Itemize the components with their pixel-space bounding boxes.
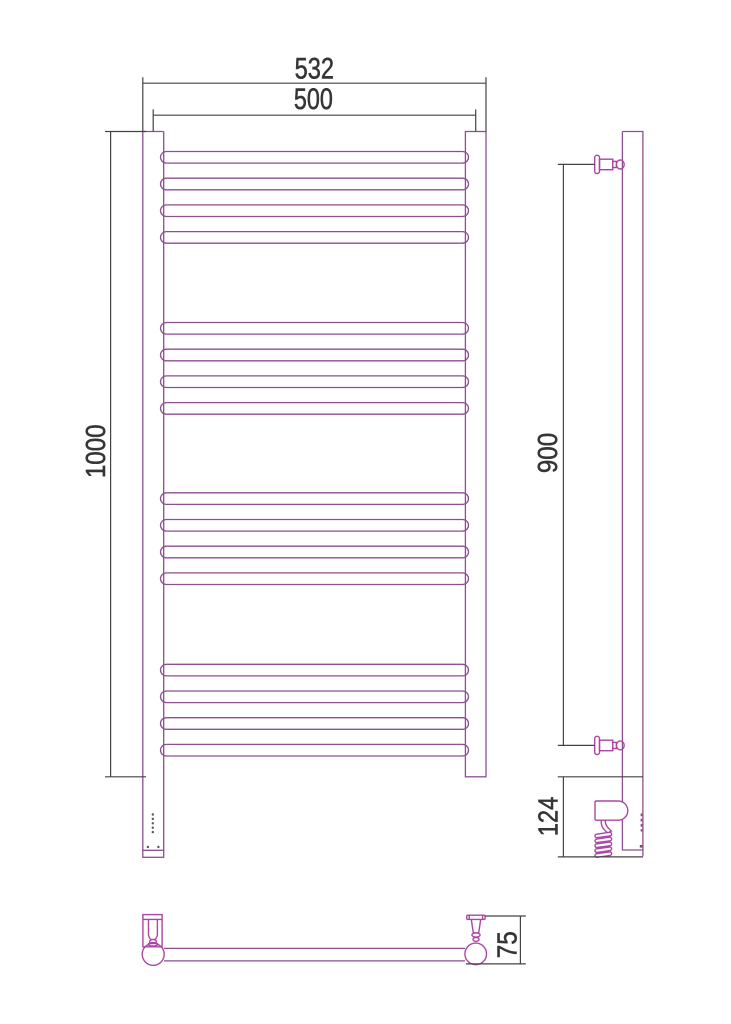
svg-text:124: 124 [533, 797, 564, 837]
svg-text:900: 900 [532, 433, 563, 473]
svg-text:75: 75 [492, 931, 523, 958]
svg-text:500: 500 [294, 83, 333, 116]
svg-text:1000: 1000 [80, 424, 111, 478]
svg-text:532: 532 [295, 52, 334, 85]
